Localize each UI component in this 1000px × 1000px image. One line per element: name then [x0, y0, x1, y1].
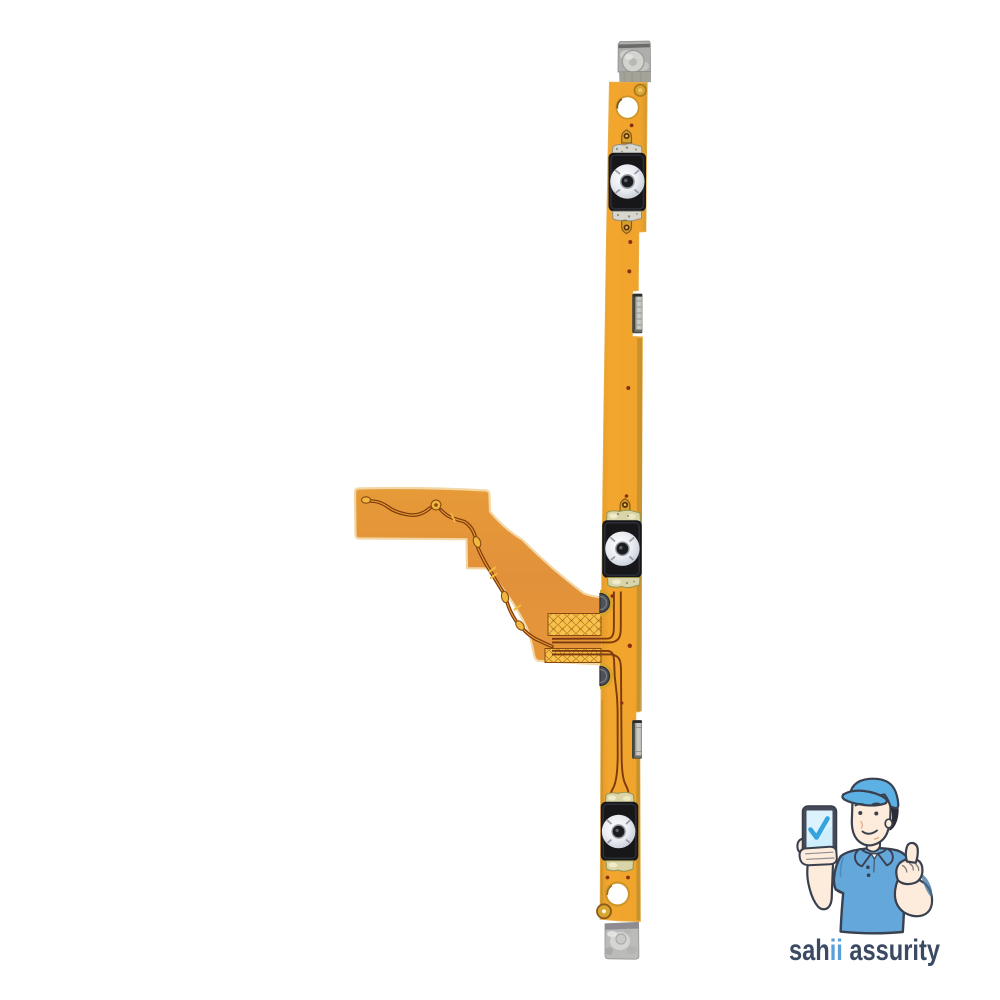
- svg-text:sahii assurity: sahii assurity: [789, 934, 940, 967]
